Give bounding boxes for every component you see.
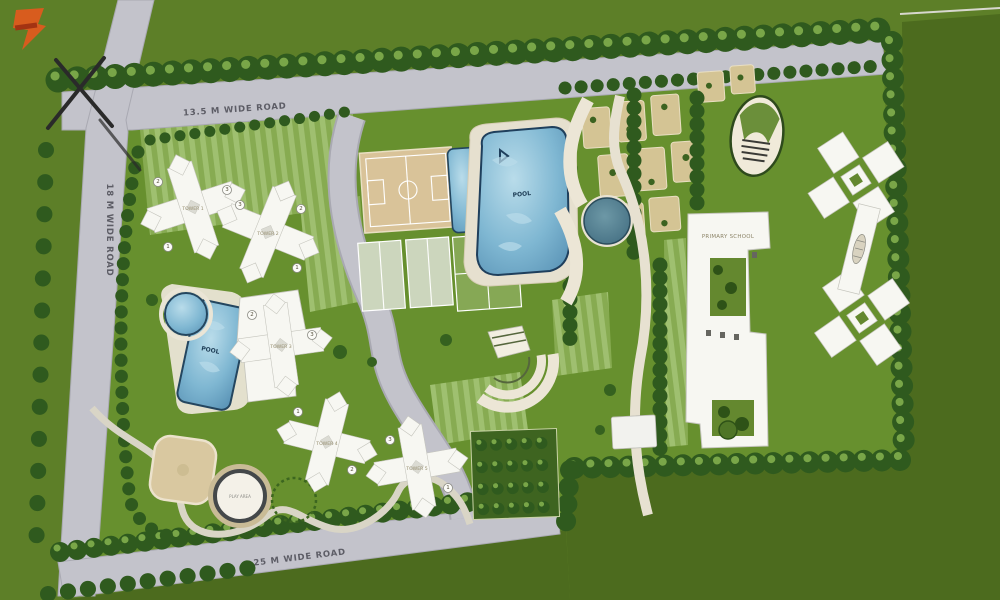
svg-text:1: 1 bbox=[295, 265, 299, 271]
site-plan-map: 13.5 M WIDE ROAD 18 M WIDE ROAD 25 M WID… bbox=[0, 0, 1000, 600]
svg-text:3: 3 bbox=[310, 332, 314, 338]
svg-text:3: 3 bbox=[225, 187, 229, 193]
tower-4-label: TOWER 4 bbox=[315, 441, 338, 447]
basketball-court bbox=[359, 147, 456, 233]
tower-1-label: TOWER 1 bbox=[181, 206, 204, 212]
sand-play-area bbox=[148, 434, 218, 506]
road-left-label: 18 M WIDE ROAD bbox=[104, 184, 114, 277]
svg-text:1: 1 bbox=[166, 244, 170, 250]
svg-text:2: 2 bbox=[299, 206, 303, 212]
school-label: PRIMARY SCHOOL bbox=[702, 234, 754, 240]
site-plan-screenshot: 13.5 M WIDE ROAD 18 M WIDE ROAD 25 M WID… bbox=[0, 0, 1000, 600]
svg-text:2: 2 bbox=[350, 467, 354, 473]
main-pool: POOL bbox=[464, 118, 578, 286]
grove-block bbox=[470, 429, 559, 520]
svg-text:2: 2 bbox=[156, 179, 160, 185]
play-area-label: PLAY AREA bbox=[229, 494, 251, 499]
svg-text:3: 3 bbox=[388, 437, 392, 443]
round-pond bbox=[581, 195, 633, 247]
tower-5-label: TOWER 5 bbox=[405, 466, 428, 472]
svg-text:1: 1 bbox=[446, 485, 450, 491]
circular-plaza: PLAY AREA bbox=[211, 467, 269, 525]
svg-text:1: 1 bbox=[296, 409, 300, 415]
tower-3-label: TOWER 3 bbox=[269, 344, 292, 350]
svg-text:2: 2 bbox=[250, 312, 254, 318]
outbuilding bbox=[611, 415, 657, 449]
tower-2-label: TOWER 2 bbox=[256, 231, 279, 237]
svg-text:3: 3 bbox=[238, 202, 242, 208]
